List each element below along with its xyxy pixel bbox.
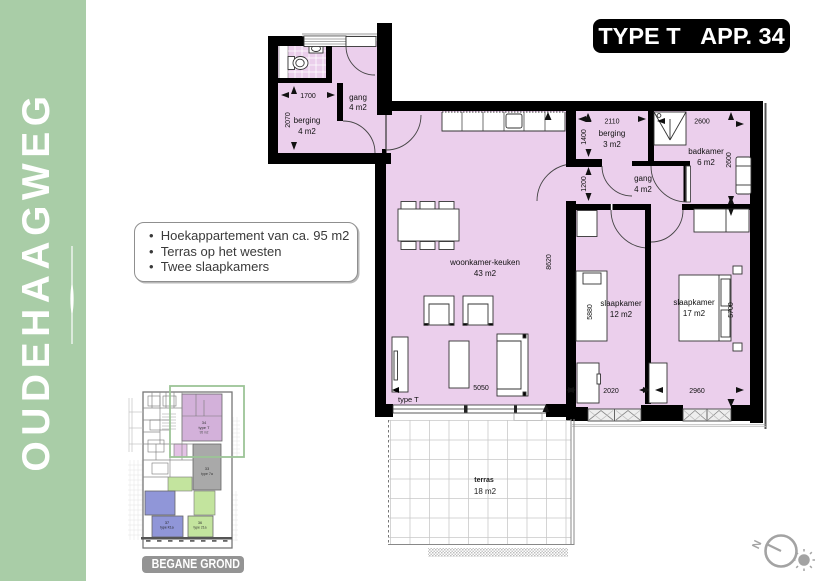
svg-text:gang: gang <box>634 174 652 183</box>
svg-text:5700: 5700 <box>728 302 735 318</box>
svg-text:1700: 1700 <box>300 93 316 100</box>
svg-text:2110: 2110 <box>604 119 619 126</box>
svg-text:6 m2: 6 m2 <box>697 158 715 167</box>
svg-text:4 m2: 4 m2 <box>349 103 367 112</box>
svg-text:2960: 2960 <box>689 388 705 395</box>
svg-text:type 21a: type 21a <box>193 526 206 530</box>
svg-text:4 m2: 4 m2 <box>298 127 316 136</box>
svg-text:37: 37 <box>165 521 169 525</box>
svg-text:type K1a: type K1a <box>160 526 173 530</box>
svg-text:36: 36 <box>198 521 202 525</box>
svg-text:2020: 2020 <box>603 388 619 395</box>
svg-text:43 m2: 43 m2 <box>474 269 497 278</box>
svg-text:type T: type T <box>398 395 419 404</box>
svg-text:12 m2: 12 m2 <box>610 310 633 319</box>
svg-text:gang: gang <box>349 93 367 102</box>
svg-text:slaapkamer: slaapkamer <box>600 299 642 308</box>
svg-text:N: N <box>750 539 764 551</box>
svg-text:3 m2: 3 m2 <box>603 140 621 149</box>
svg-text:2070: 2070 <box>285 112 292 128</box>
svg-text:type T: type T <box>198 425 210 430</box>
svg-text:95 m2: 95 m2 <box>200 431 209 435</box>
svg-text:8620: 8620 <box>546 254 553 270</box>
svg-text:berging: berging <box>294 116 321 125</box>
svg-text:5880: 5880 <box>587 304 594 320</box>
svg-text:2600: 2600 <box>694 119 710 126</box>
svg-text:18 m2: 18 m2 <box>474 487 497 496</box>
svg-text:type 7a: type 7a <box>201 472 213 476</box>
svg-text:33: 33 <box>205 466 210 471</box>
svg-text:1200: 1200 <box>581 176 588 192</box>
svg-text:badkamer: badkamer <box>688 147 724 156</box>
svg-text:woonkamer-keuken: woonkamer-keuken <box>449 258 520 267</box>
svg-text:berging: berging <box>599 129 626 138</box>
svg-text:4 m2: 4 m2 <box>634 185 652 194</box>
svg-text:17 m2: 17 m2 <box>683 309 706 318</box>
svg-text:5050: 5050 <box>473 385 489 392</box>
svg-text:slaapkamer: slaapkamer <box>673 298 715 307</box>
svg-text:1400: 1400 <box>581 129 588 145</box>
svg-text:terras: terras <box>474 477 494 484</box>
svg-text:2600: 2600 <box>726 152 733 168</box>
